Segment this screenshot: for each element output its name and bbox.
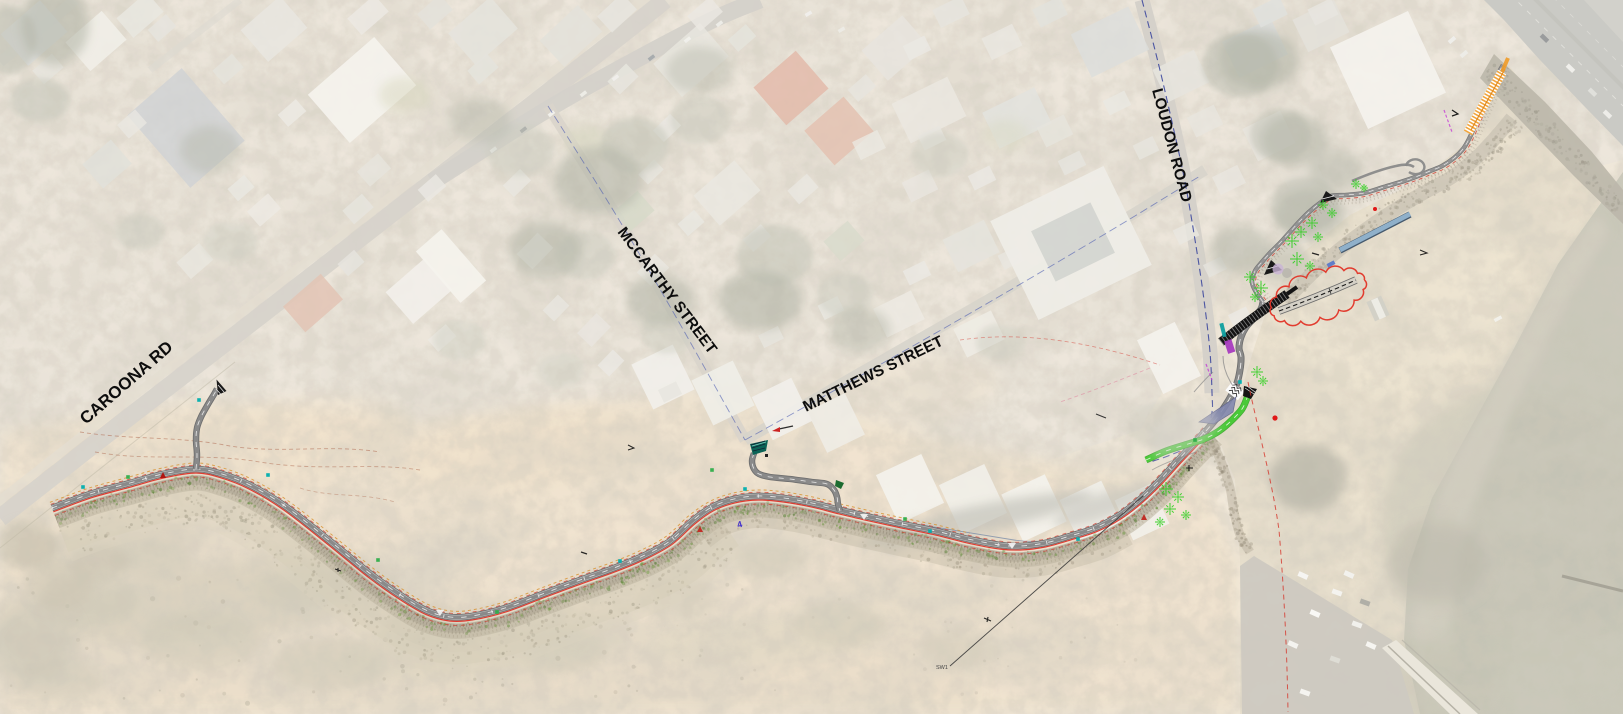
svg-text:SW1: SW1 [936, 665, 948, 671]
